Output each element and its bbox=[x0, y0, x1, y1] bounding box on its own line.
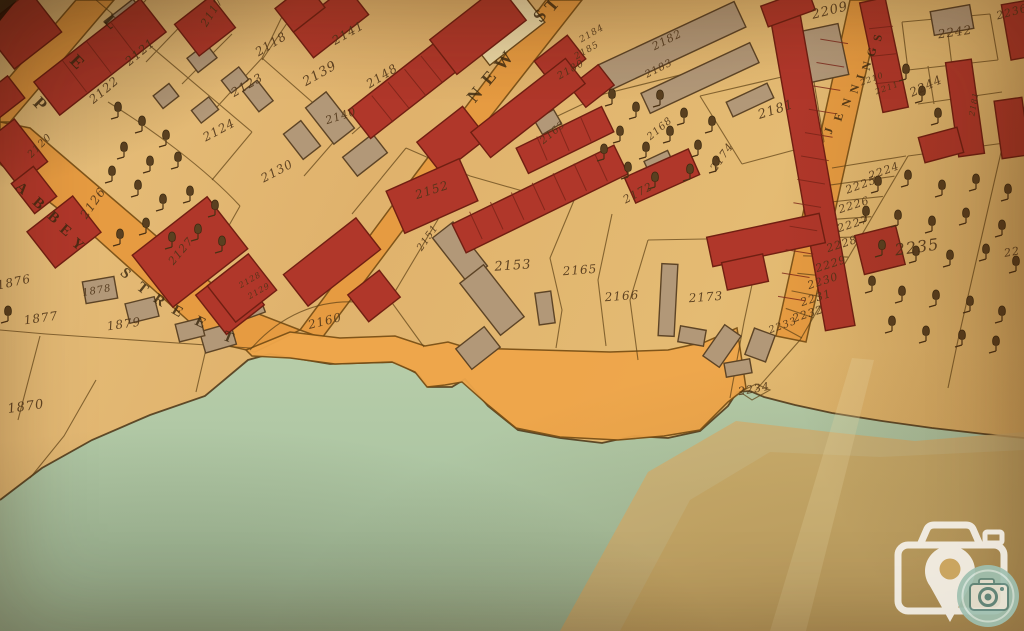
historic-map: 2117211821212122212321242130213921412148… bbox=[0, 0, 1024, 631]
map-graphics bbox=[0, 0, 1024, 631]
